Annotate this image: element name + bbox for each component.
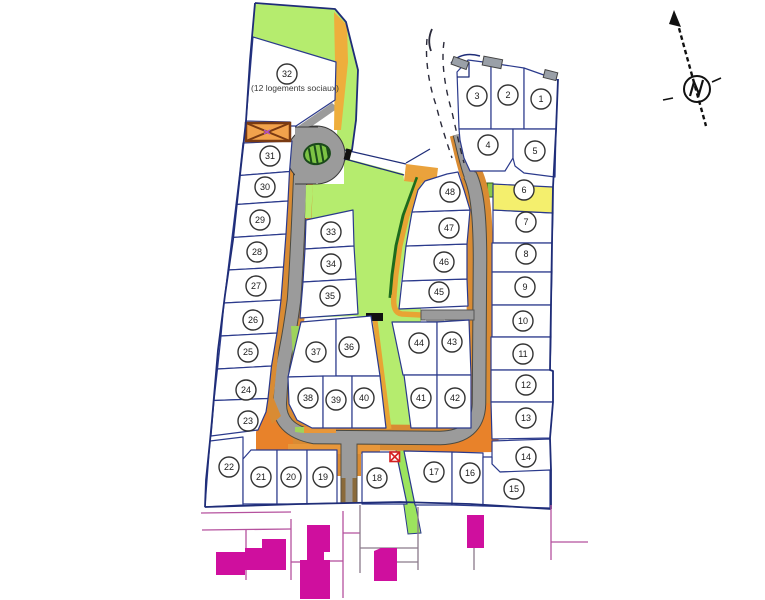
svg-text:40: 40 xyxy=(359,393,369,403)
svg-text:17: 17 xyxy=(429,467,439,477)
svg-text:5: 5 xyxy=(532,146,537,156)
svg-text:22: 22 xyxy=(224,462,234,472)
svg-text:29: 29 xyxy=(255,215,265,225)
svg-text:18: 18 xyxy=(372,473,382,483)
svg-text:45: 45 xyxy=(434,287,444,297)
svg-text:38: 38 xyxy=(303,393,313,403)
svg-text:48: 48 xyxy=(445,187,455,197)
svg-text:20: 20 xyxy=(286,472,296,482)
svg-text:21: 21 xyxy=(256,472,266,482)
svg-text:31: 31 xyxy=(265,151,275,161)
svg-text:46: 46 xyxy=(439,257,449,267)
svg-text:7: 7 xyxy=(523,217,528,227)
svg-text:(12 logements sociaux): (12 logements sociaux) xyxy=(251,83,339,93)
svg-text:24: 24 xyxy=(241,385,251,395)
svg-text:30: 30 xyxy=(260,182,270,192)
svg-text:13: 13 xyxy=(521,413,531,423)
svg-text:36: 36 xyxy=(344,342,354,352)
svg-text:47: 47 xyxy=(444,223,454,233)
svg-text:44: 44 xyxy=(414,338,424,348)
svg-text:23: 23 xyxy=(243,416,253,426)
svg-text:2: 2 xyxy=(505,90,510,100)
svg-text:28: 28 xyxy=(252,247,262,257)
svg-text:8: 8 xyxy=(523,249,528,259)
svg-text:3: 3 xyxy=(474,91,479,101)
svg-text:32: 32 xyxy=(282,69,292,79)
svg-text:14: 14 xyxy=(521,452,531,462)
svg-text:1: 1 xyxy=(538,94,543,104)
svg-text:9: 9 xyxy=(522,282,527,292)
svg-text:41: 41 xyxy=(416,393,426,403)
svg-text:43: 43 xyxy=(447,337,457,347)
svg-text:11: 11 xyxy=(518,349,527,359)
svg-text:33: 33 xyxy=(326,227,336,237)
svg-text:35: 35 xyxy=(325,291,335,301)
svg-text:26: 26 xyxy=(248,315,258,325)
svg-text:16: 16 xyxy=(465,468,475,478)
svg-text:19: 19 xyxy=(318,472,328,482)
svg-text:34: 34 xyxy=(326,259,336,269)
svg-text:10: 10 xyxy=(518,316,528,326)
svg-text:4: 4 xyxy=(485,140,490,150)
svg-text:27: 27 xyxy=(251,281,261,291)
svg-text:12: 12 xyxy=(521,380,531,390)
svg-text:15: 15 xyxy=(509,484,519,494)
svg-text:37: 37 xyxy=(311,347,321,357)
svg-text:39: 39 xyxy=(331,395,341,405)
svg-text:25: 25 xyxy=(243,347,253,357)
svg-text:42: 42 xyxy=(450,393,460,403)
svg-text:6: 6 xyxy=(521,185,526,195)
